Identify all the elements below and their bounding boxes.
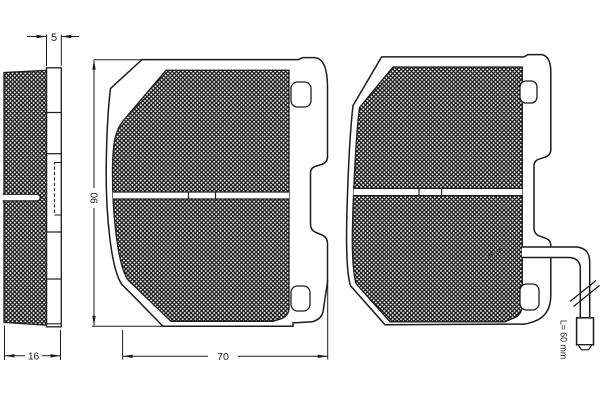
svg-text:70: 70	[217, 351, 229, 363]
svg-text:16: 16	[28, 352, 40, 363]
svg-text:L= 60 mm: L= 60 mm	[559, 320, 569, 359]
svg-text:90: 90	[89, 192, 100, 204]
svg-text:5: 5	[51, 32, 57, 44]
